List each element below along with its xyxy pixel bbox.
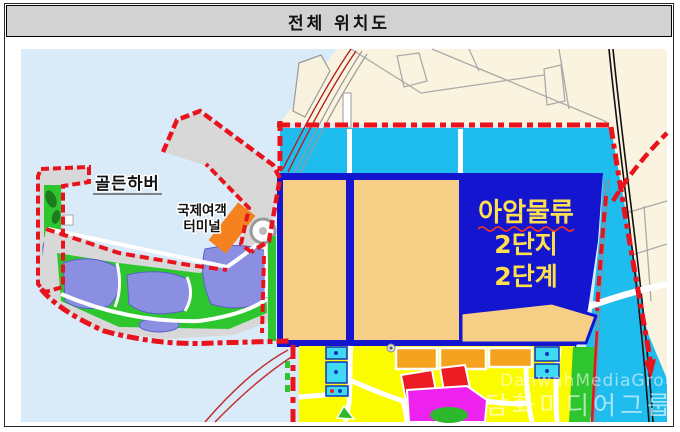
map-canvas: 골든하버 국제여객 터미널 아암물류 2단지 2단계 DanwahMediaGr… [6,43,672,425]
terminal-label-line1: 국제여객 [177,202,227,219]
terminal-label-line2: 터미널 [183,219,220,235]
figure-frame: 전체 위치도 [4,3,674,427]
reclaimed-parcel-1 [283,180,346,340]
roundabout-center [259,227,267,235]
map-pin-dot [390,347,393,350]
basin-divider [347,129,352,174]
title-bar: 전체 위치도 [6,5,672,37]
east-green-strip [268,236,276,341]
golden-harbor-label: 골든하버 [95,174,160,193]
logistics-label-line1: 아암물류 [478,198,574,228]
watermark-korean: 담화미디어그룹 [485,391,672,420]
park-circle [430,407,468,423]
logistics-label-line3: 2단계 [494,262,557,291]
logistics-label-line2: 2단지 [494,230,557,259]
watermark-latin: DanwahMediaGroup [500,371,672,391]
basin-divider [458,129,463,174]
coast-road [343,93,351,127]
reclaimed-parcel-2 [354,180,459,340]
watermark: DanwahMediaGroup 담화미디어그룹 [485,371,672,420]
page-title: 전체 위치도 [288,9,390,34]
location-map: 골든하버 국제여객 터미널 아암물류 2단지 2단계 DanwahMediaGr… [6,43,672,425]
green-dashes [285,361,290,392]
